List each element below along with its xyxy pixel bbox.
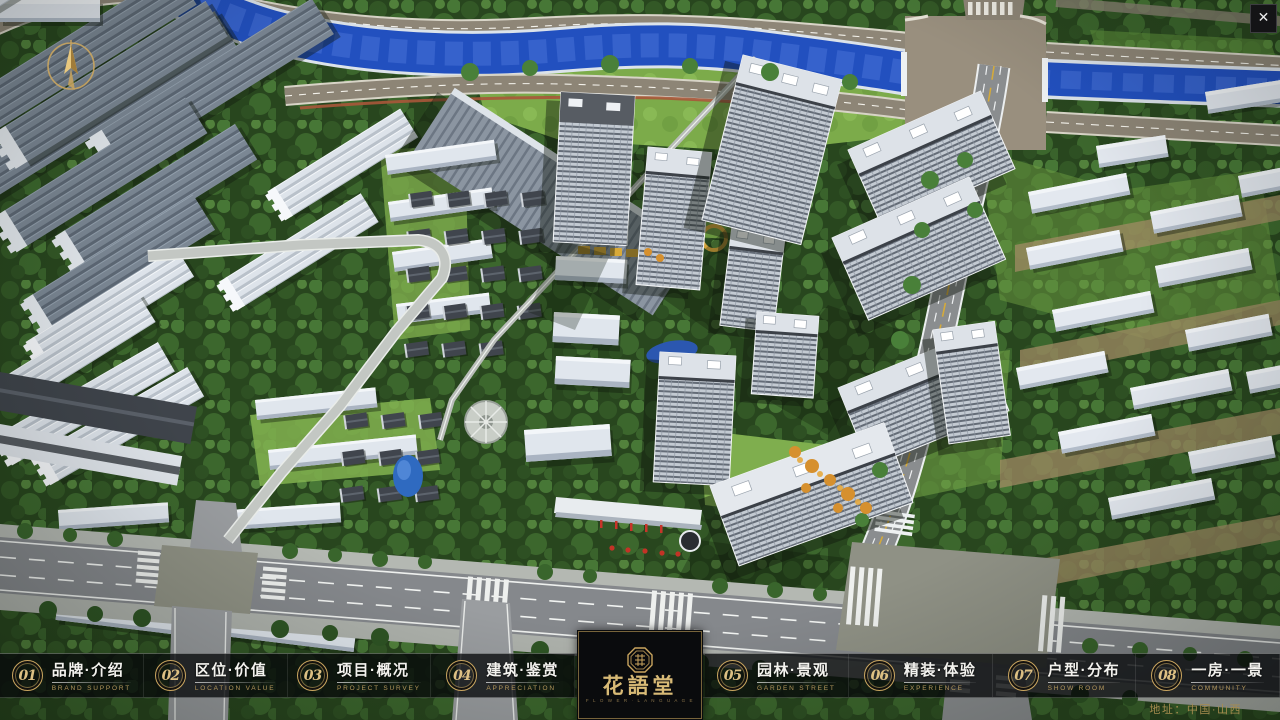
presentation-app: ✕ 01 品牌·介绍BRAND SUPPORT 02 区位·价值LOCATION…: [0, 0, 1280, 720]
nav-number: 08: [1158, 668, 1175, 684]
nav-number: 03: [304, 668, 321, 684]
nav-label-en: PROJECT SURVEY: [337, 685, 421, 692]
masterplan-render[interactable]: [0, 0, 1280, 720]
nav-label-en: EXPERIENCE: [904, 685, 977, 692]
nav-badge-04: 04: [446, 660, 477, 691]
nav-badge-07: 07: [1008, 660, 1039, 691]
nav-label-cn: 区位·价值: [195, 659, 276, 680]
nav-divider: [1048, 682, 1121, 683]
brand-seal-icon: [627, 647, 653, 673]
nav-label-en: GARDEN STREET: [757, 685, 836, 692]
nav-badge-08: 08: [1151, 660, 1182, 691]
nav-divider: [52, 682, 131, 683]
nav-divider: [486, 682, 559, 683]
nav-label-cn: 精装·体验: [904, 659, 977, 680]
close-button[interactable]: ✕: [1250, 4, 1277, 33]
nav-number: 02: [162, 668, 179, 684]
nav-item-project[interactable]: 03 项目·概况PROJECT SURVEY: [288, 654, 432, 697]
nav-number: 05: [724, 668, 741, 684]
address-text: 地址：中国·山西: [1149, 701, 1242, 717]
nav-label-cn: 户型·分布: [1048, 659, 1121, 680]
compass-icon: [44, 38, 100, 98]
nav-label-en: LOCATION VALUE: [195, 685, 276, 692]
nav-item-interior[interactable]: 06 精装·体验EXPERIENCE: [849, 654, 993, 697]
nav-item-architecture[interactable]: 04 建筑·鉴赏APPRECIATION: [431, 654, 575, 697]
compass: [44, 38, 100, 98]
nav-item-brand[interactable]: 01 品牌·介绍BRAND SUPPORT: [0, 654, 144, 697]
nav-divider: [337, 682, 421, 683]
nav-label-en: COMMUNITY: [1191, 685, 1264, 692]
nav-badge-03: 03: [297, 660, 328, 691]
nav-divider: [904, 682, 977, 683]
nav-divider: [757, 682, 836, 683]
brand-subtitle: F L O W E R · L A N G U A G E: [586, 698, 694, 703]
nav-label-en: BRAND SUPPORT: [52, 685, 131, 692]
nav-item-garden[interactable]: 05 园林·景观GARDEN STREET: [705, 654, 849, 697]
brand-name: 花語堂: [603, 675, 678, 696]
nav-label-en: SHOW ROOM: [1048, 685, 1121, 692]
nav-number: 07: [1014, 668, 1031, 684]
nav-number: 06: [871, 668, 888, 684]
nav-item-location[interactable]: 02 区位·价值LOCATION VALUE: [144, 654, 288, 697]
brand-logo-panel[interactable]: 花語堂 F L O W E R · L A N G U A G E: [578, 631, 702, 719]
nav-label-cn: 一房·一景: [1191, 659, 1264, 680]
nav-badge-06: 06: [864, 660, 895, 691]
nav-divider: [195, 682, 276, 683]
nav-badge-02: 02: [155, 660, 186, 691]
nav-label-cn: 园林·景观: [757, 659, 836, 680]
nav-label-cn: 建筑·鉴赏: [486, 659, 559, 680]
nav-label-cn: 项目·概况: [337, 659, 421, 680]
nav-number: 01: [18, 668, 35, 684]
nav-label-en: APPRECIATION: [486, 685, 559, 692]
nav-item-floorplans[interactable]: 07 户型·分布SHOW ROOM: [993, 654, 1137, 697]
nav-badge-05: 05: [717, 660, 748, 691]
nav-divider: [1191, 682, 1264, 683]
nav-item-community[interactable]: 08 一房·一景COMMUNITY: [1136, 654, 1280, 697]
nav-number: 04: [453, 668, 470, 684]
nav-label-cn: 品牌·介绍: [52, 659, 131, 680]
nav-badge-01: 01: [12, 660, 43, 691]
